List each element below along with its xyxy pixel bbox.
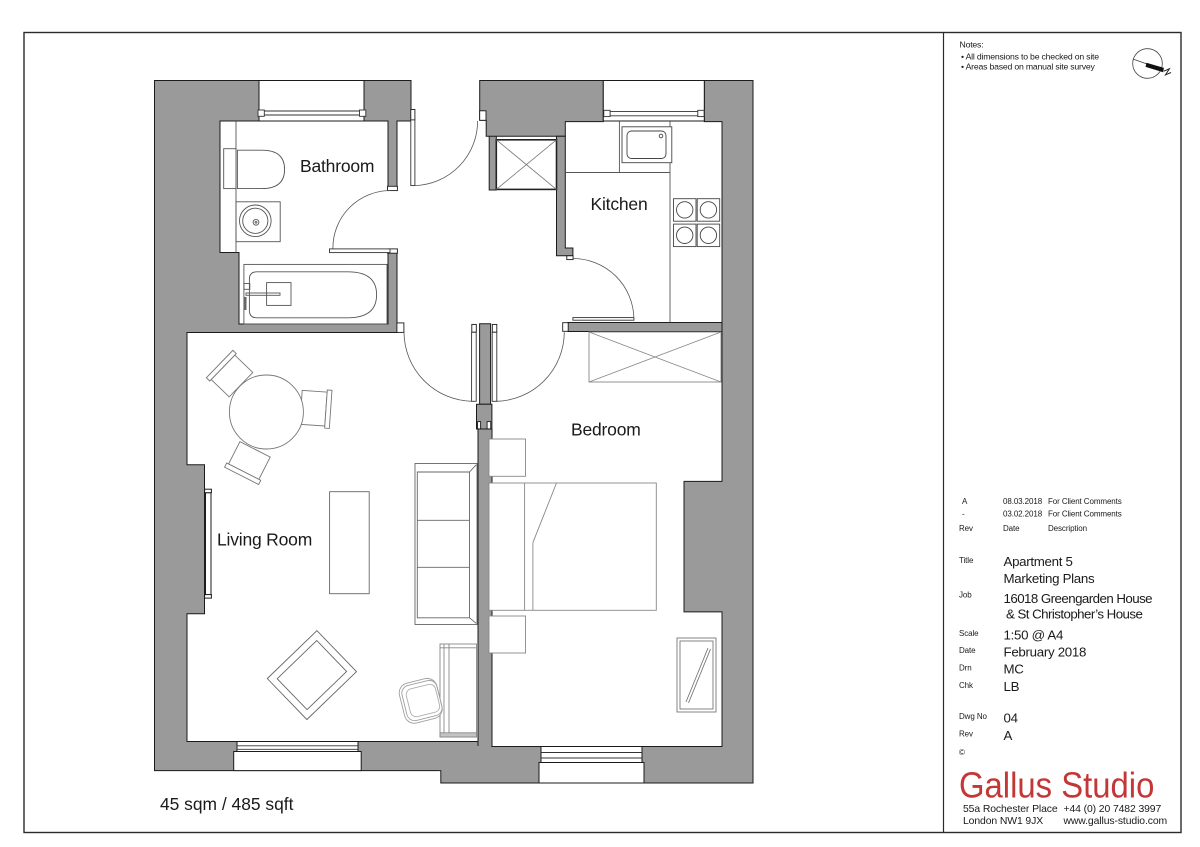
svg-text:For Client Comments: For Client Comments [1048,497,1122,506]
svg-text:1:50 @ A4: 1:50 @ A4 [1004,628,1064,643]
svg-text:Title: Title [959,556,974,565]
svg-text:Bedroom: Bedroom [571,419,641,439]
svg-text:For Client Comments: For Client Comments [1048,510,1122,519]
svg-text:Kitchen: Kitchen [591,194,648,214]
svg-text:• All dimensions to be checked: • All dimensions to be checked on site [961,52,1099,62]
svg-text:Bathroom: Bathroom [300,156,374,176]
svg-text:Job: Job [959,591,972,600]
svg-text:Scale: Scale [959,629,979,638]
svg-text:Date: Date [959,646,976,655]
svg-text:Notes:: Notes: [960,40,984,50]
svg-text:-: - [962,510,965,519]
svg-text:London NW1 9JX: London NW1 9JX [963,816,1043,827]
svg-text:Rev: Rev [959,730,973,739]
svg-text:+44 (0) 20 7482 3997: +44 (0) 20 7482 3997 [1064,804,1162,815]
svg-text:A: A [962,497,968,506]
svg-text:& St Christopher’s House: & St Christopher’s House [1006,607,1142,622]
svg-text:www.gallus-studio.com: www.gallus-studio.com [1063,816,1168,827]
svg-text:Gallus Studio: Gallus Studio [959,766,1154,806]
svg-text:16018 Greengarden House: 16018 Greengarden House [1004,591,1153,606]
svg-text:MC: MC [1004,662,1025,677]
svg-text:Chk: Chk [959,681,974,690]
svg-text:04: 04 [1004,711,1018,726]
svg-text:A: A [1004,728,1013,743]
svg-text:08.03.2018: 08.03.2018 [1003,497,1043,506]
svg-text:55a Rochester Place: 55a Rochester Place [963,804,1058,815]
svg-text:Description: Description [1048,524,1087,533]
svg-text:©: © [959,748,965,757]
svg-text:Apartment 5: Apartment 5 [1004,554,1073,569]
svg-text:Rev: Rev [959,524,973,533]
svg-text:• Areas based on manual site s: • Areas based on manual site survey [961,62,1096,72]
svg-text:45 sqm / 485 sqft: 45 sqm / 485 sqft [160,794,294,814]
svg-text:Marketing Plans: Marketing Plans [1004,571,1095,586]
svg-text:Living Room: Living Room [217,530,312,550]
svg-text:Drn: Drn [959,664,972,673]
svg-text:Dwg No: Dwg No [959,712,988,721]
svg-text:Date: Date [1003,524,1020,533]
svg-text:03.02.2018: 03.02.2018 [1003,510,1043,519]
svg-text:February 2018: February 2018 [1004,645,1087,660]
svg-text:LB: LB [1004,679,1020,694]
